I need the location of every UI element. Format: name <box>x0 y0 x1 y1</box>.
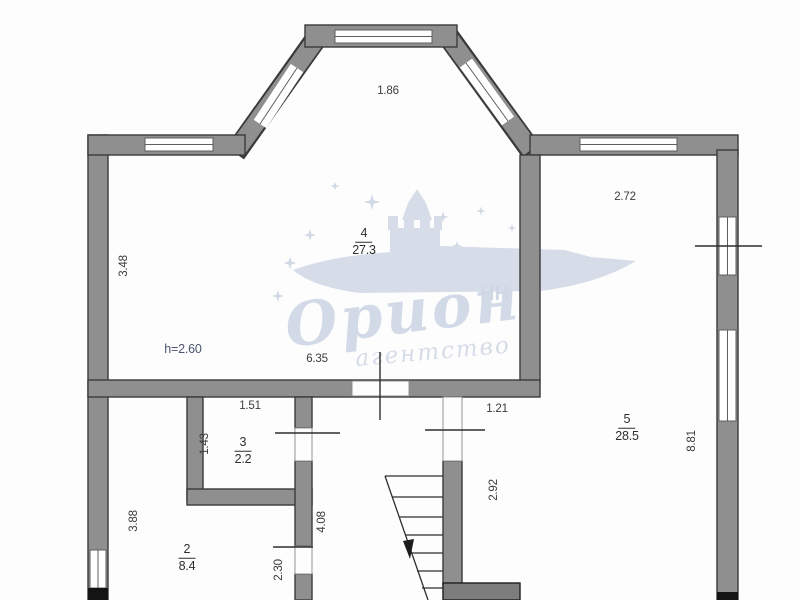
wall-hall-right <box>443 461 462 585</box>
dim-right-wall-lower: 8.81 <box>686 430 698 452</box>
wall-left <box>88 135 108 600</box>
dim-ceiling-height: h=2.60 <box>164 342 201 356</box>
room-5-number: 5 <box>619 413 636 429</box>
dim-bay-top: 1.86 <box>377 85 399 97</box>
watermark-art: Орион НН агентство <box>272 182 636 372</box>
dim-room3-height: 1.43 <box>199 433 211 455</box>
wall-caps <box>88 588 738 600</box>
dim-hall-height: 4.08 <box>316 511 328 533</box>
wall-room3-bottom <box>187 489 312 505</box>
room-5-area: 28.5 <box>615 429 639 444</box>
wall-hall-left-lower <box>295 574 312 600</box>
room-3-area: 2.2 <box>235 452 252 467</box>
dim-room5-inner: 2.92 <box>488 479 500 501</box>
wall-hall-left-upper <box>295 397 312 428</box>
room-4-label: 4 27.3 <box>352 227 376 258</box>
room-4-area: 27.3 <box>352 243 376 258</box>
dim-room2-left: 3.88 <box>128 510 140 532</box>
wall-hall-left-mid <box>295 461 312 546</box>
dim-right-wing-top: 2.72 <box>614 191 636 203</box>
dim-room2-door: 2.30 <box>273 559 285 581</box>
dim-left-wall-upper: 3.48 <box>118 255 130 277</box>
door-room2 <box>295 546 312 574</box>
wall-room4-bottom <box>88 380 540 397</box>
stairs <box>385 476 443 600</box>
wall-left-cap <box>88 588 108 600</box>
room-2-label: 2 8.4 <box>179 543 196 574</box>
interior-walls <box>88 155 540 600</box>
room-3-number: 3 <box>235 436 252 452</box>
room-5-label: 5 28.5 <box>615 413 639 444</box>
dim-room5-door: 1.21 <box>486 403 508 415</box>
wall-room4-room5-divider <box>520 155 540 382</box>
room-2-number: 2 <box>179 543 196 559</box>
wall-right-cap <box>717 592 738 600</box>
stairs-stringer <box>385 476 428 600</box>
dim-room3-width: 1.51 <box>239 400 261 412</box>
room-3-label: 3 2.2 <box>235 436 252 467</box>
floor-plan-page: Орион НН агентство <box>0 0 800 600</box>
room-4-number: 4 <box>356 227 373 243</box>
door-room5 <box>443 397 462 461</box>
watermark-region: НН <box>480 283 509 305</box>
dim-room4-bottom: 6.35 <box>306 353 328 365</box>
wall-bottom-center <box>443 583 520 600</box>
room-2-area: 8.4 <box>179 559 196 574</box>
floor-plan-canvas: Орион НН агентство <box>0 0 800 600</box>
